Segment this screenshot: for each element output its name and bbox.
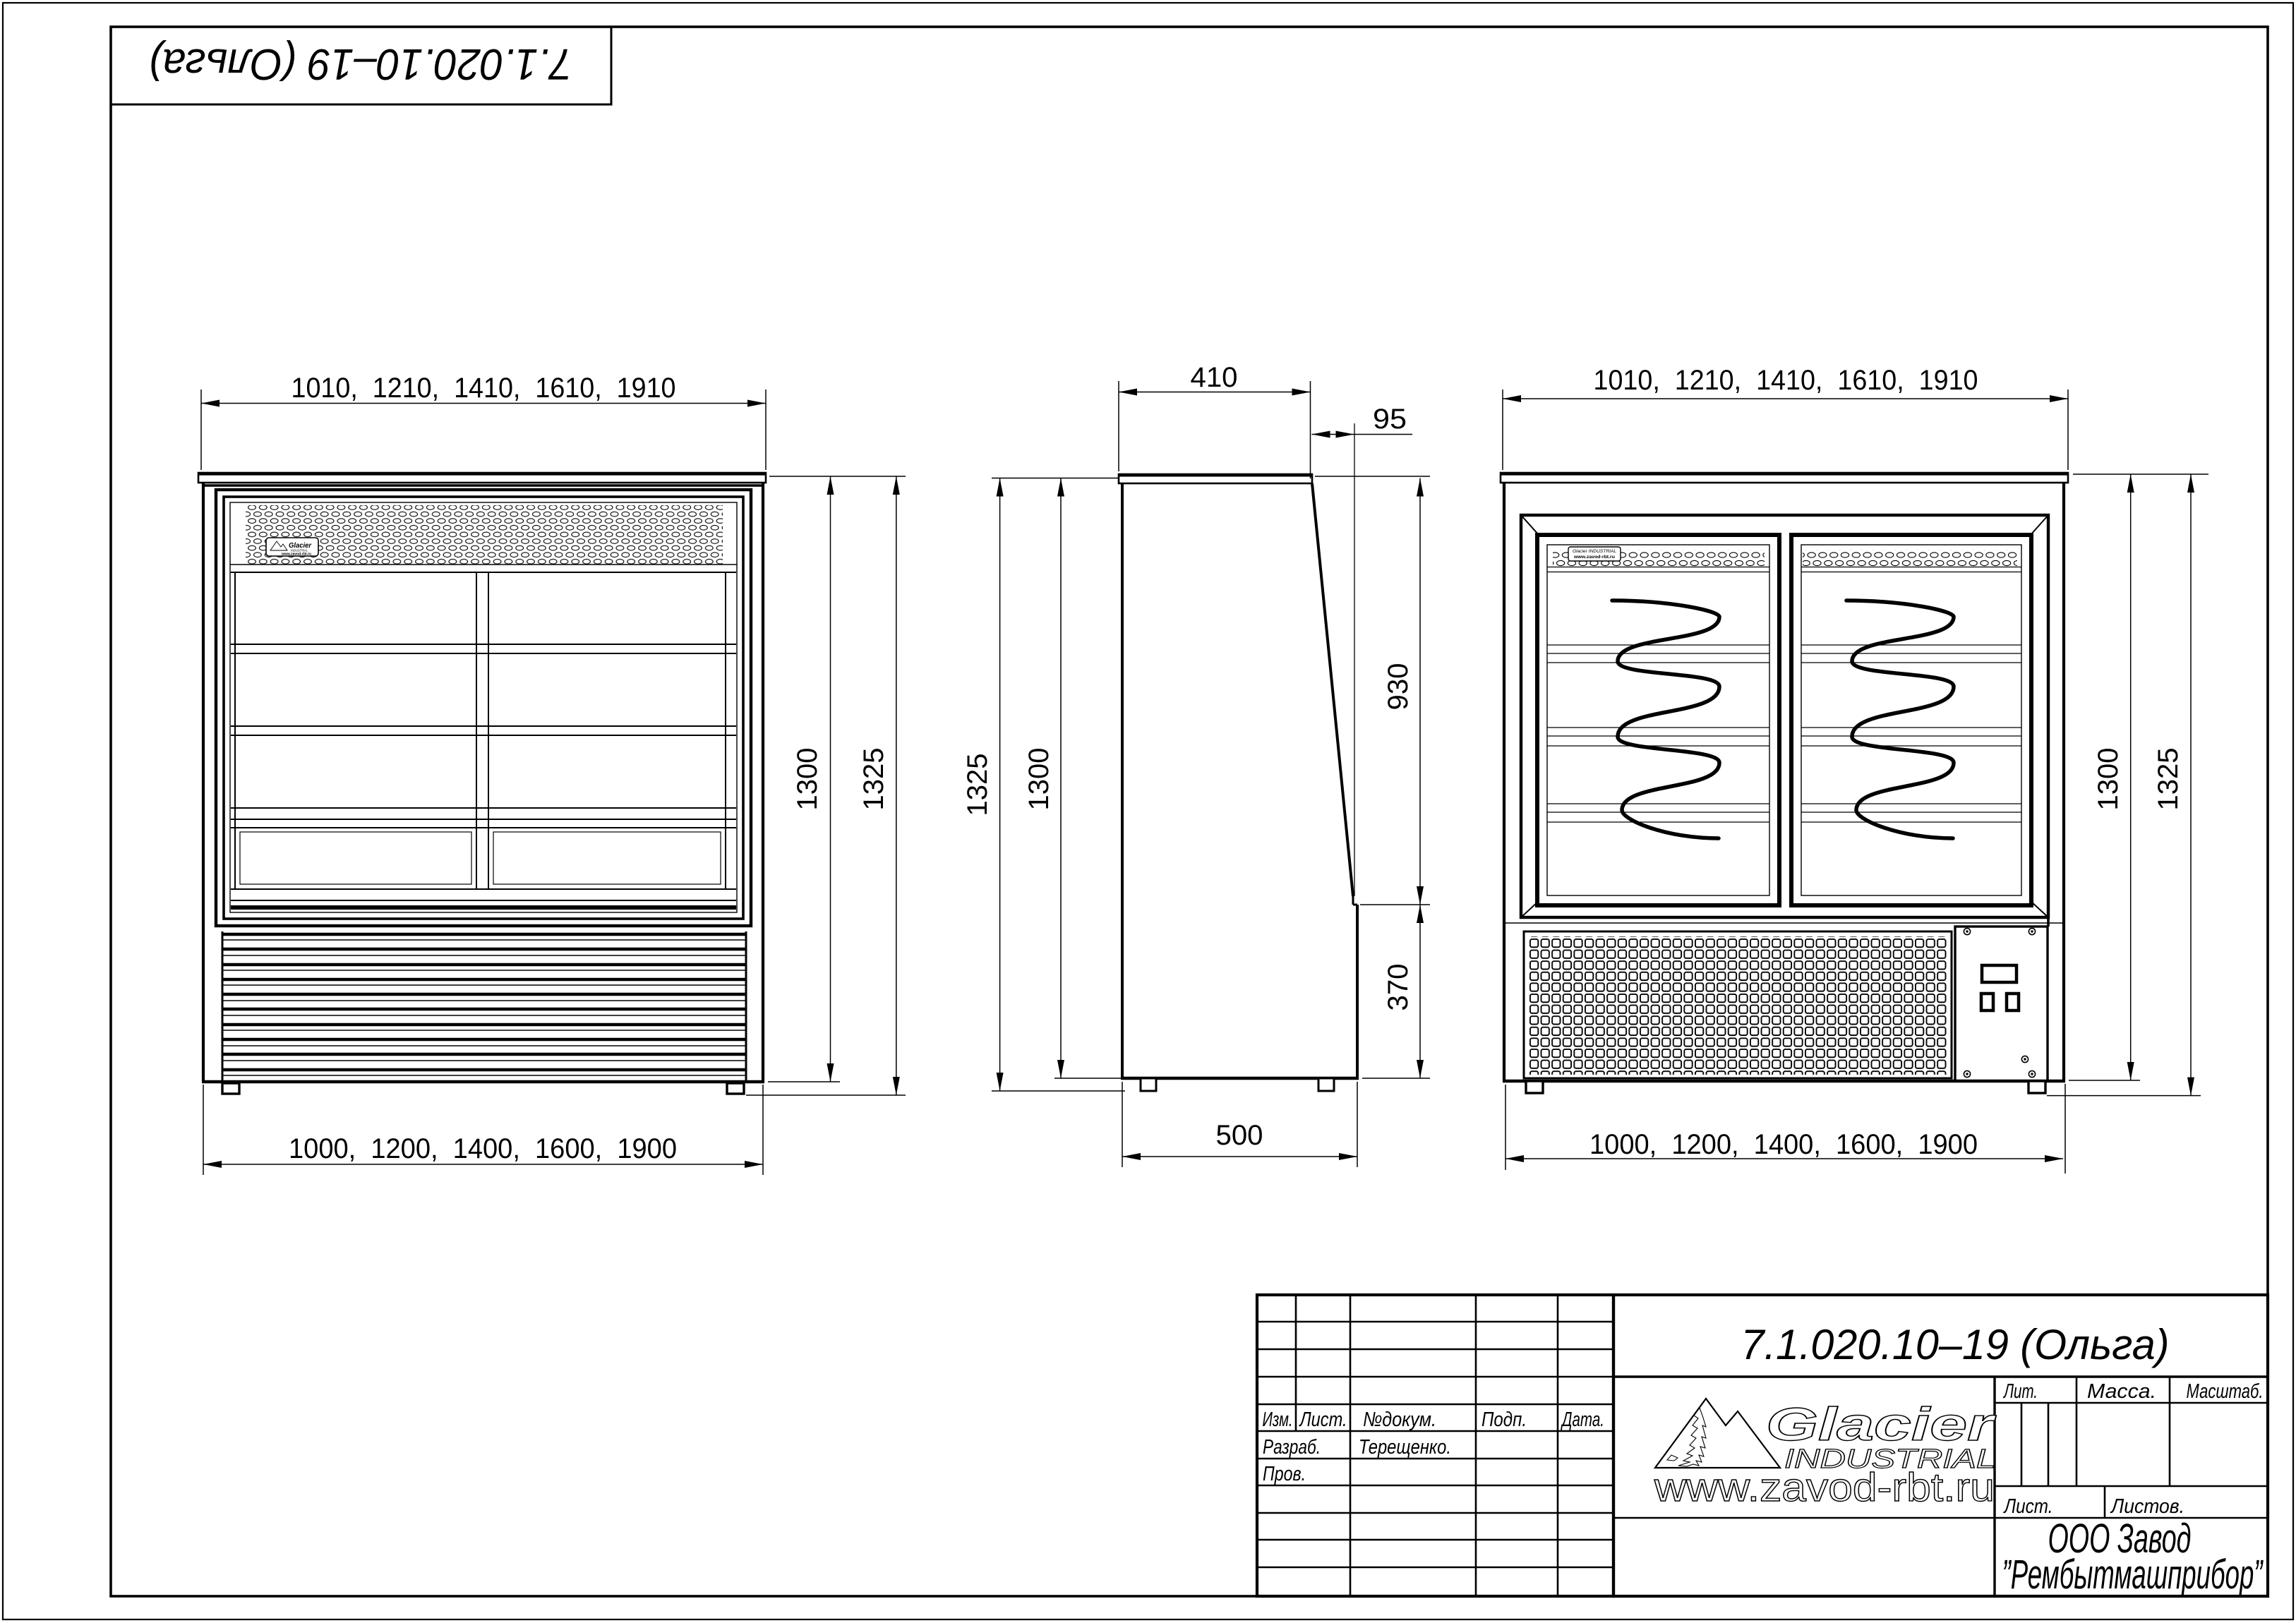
svg-text:www.zavod-rbt.ru: www.zavod-rbt.ru <box>281 553 311 557</box>
svg-text:Изм.: Изм. <box>1263 1408 1293 1431</box>
svg-text:Glacier: Glacier <box>1766 1398 1997 1450</box>
svg-text:410: 410 <box>1191 362 1238 393</box>
svg-text:500: 500 <box>1216 1120 1263 1151</box>
svg-text:Пров.: Пров. <box>1263 1463 1306 1485</box>
svg-text:1325: 1325 <box>962 754 993 816</box>
svg-text:1300: 1300 <box>2093 748 2124 811</box>
svg-text:Лист.: Лист. <box>2003 1495 2053 1518</box>
svg-text:95: 95 <box>1373 404 1407 435</box>
svg-text:Лист.: Лист. <box>1299 1408 1347 1431</box>
svg-text:1000, 1200, 1400, 1600, 19: 1000, 1200, 1400, 1600, 1900 <box>1589 1129 1978 1160</box>
svg-text:7.1.020.10–19 (Ольга): 7.1.020.10–19 (Ольга) <box>1741 1321 2170 1368</box>
svg-text:1325: 1325 <box>858 748 889 811</box>
svg-text:Glacier INDUSTRIAL: Glacier INDUSTRIAL <box>1573 549 1616 554</box>
svg-text:Разраб.: Разраб. <box>1263 1436 1321 1459</box>
svg-text:1010, 1210, 1410, 1610, 19: 1010, 1210, 1410, 1610, 1910 <box>291 373 676 404</box>
svg-text:Листов.: Листов. <box>2110 1495 2184 1518</box>
svg-text:www.zavod-rbt.ru: www.zavod-rbt.ru <box>1573 555 1615 560</box>
svg-text:930: 930 <box>1383 663 1414 711</box>
svg-text:1300: 1300 <box>1023 748 1054 811</box>
svg-text:1000, 1200, 1400, 1600, 19: 1000, 1200, 1400, 1600, 1900 <box>289 1133 677 1164</box>
svg-text:Масштаб.: Масштаб. <box>2187 1380 2264 1403</box>
svg-text:1010, 1210, 1410, 1610, 19: 1010, 1210, 1410, 1610, 1910 <box>1594 365 1978 396</box>
svg-text:№докум.: №докум. <box>1363 1408 1436 1431</box>
svg-text:Дата.: Дата. <box>1561 1408 1604 1431</box>
svg-text:7.1.020.10–19 (Ольга): 7.1.020.10–19 (Ольга) <box>149 40 572 88</box>
svg-text:www.zavod-rbt.ru: www.zavod-rbt.ru <box>1654 1465 1995 1510</box>
svg-text:1325: 1325 <box>2153 748 2184 811</box>
svg-text:”Рембытмашприбор”: ”Рембытмашприбор” <box>2002 1552 2264 1598</box>
svg-text:370: 370 <box>1383 964 1414 1011</box>
svg-text:1300: 1300 <box>792 748 823 811</box>
svg-text:Подп.: Подп. <box>1481 1408 1527 1431</box>
svg-text:Лит.: Лит. <box>2003 1380 2038 1403</box>
svg-text:Масса.: Масса. <box>2087 1380 2156 1403</box>
svg-text:Терещенко.: Терещенко. <box>1359 1436 1451 1459</box>
